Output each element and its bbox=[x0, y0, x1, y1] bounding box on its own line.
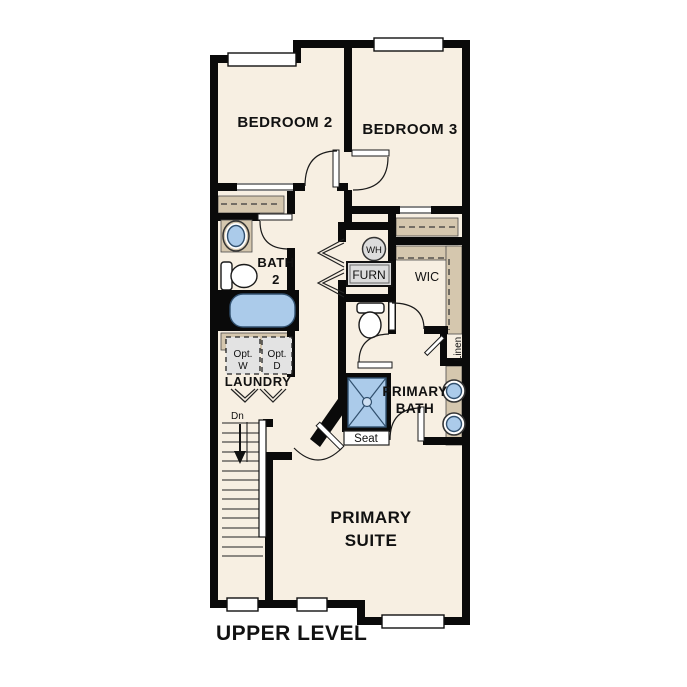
plan-title: UPPER LEVEL bbox=[216, 622, 367, 645]
room-label-laundry: LAUNDRY bbox=[225, 374, 292, 389]
optional-dryer-label: Opt. bbox=[268, 349, 287, 360]
stair-rail bbox=[259, 420, 266, 537]
room-label-primary-bath2: BATH bbox=[396, 401, 435, 416]
room-label-wic: WIC bbox=[415, 270, 439, 284]
room-label-bath2: BATH bbox=[257, 255, 294, 270]
optional-washer-label2: W bbox=[238, 361, 248, 372]
water-heater-label: WH bbox=[366, 245, 382, 256]
bedroom3-closet-shelf bbox=[396, 218, 458, 236]
toilet-icon bbox=[221, 262, 257, 290]
optional-washer-label: Opt. bbox=[234, 349, 253, 360]
room-label-primary-suite2: SUITE bbox=[345, 531, 398, 550]
window bbox=[374, 38, 443, 51]
room-label-primary-bath: PRIMARY bbox=[382, 384, 447, 399]
window bbox=[227, 598, 258, 611]
room-label-bedroom3: BEDROOM 3 bbox=[362, 121, 457, 138]
room-label-bedroom2: BEDROOM 2 bbox=[237, 114, 332, 131]
room-label-bath2-number: 2 bbox=[272, 272, 280, 287]
shower-seat-label: Seat bbox=[354, 433, 378, 445]
window bbox=[228, 53, 296, 66]
optional-dryer-label2: D bbox=[273, 361, 280, 372]
floor-plan-canvas: BEDROOM 2 BEDROOM 3 BATH 2 WIC WH FURN O… bbox=[0, 0, 687, 687]
window bbox=[382, 615, 444, 628]
window bbox=[297, 598, 327, 611]
stairs-down-label: Dn bbox=[231, 411, 244, 422]
furnace-label: FURN bbox=[352, 268, 385, 282]
floor-plan-drawing: BEDROOM 2 BEDROOM 3 BATH 2 WIC WH FURN O… bbox=[0, 0, 687, 687]
sink-icon bbox=[221, 220, 252, 252]
linen-closet-label: Linen bbox=[453, 337, 464, 361]
vanity-sink-icon bbox=[443, 413, 465, 435]
room-label-primary-suite: PRIMARY bbox=[330, 508, 411, 527]
bathtub-icon bbox=[218, 290, 299, 331]
